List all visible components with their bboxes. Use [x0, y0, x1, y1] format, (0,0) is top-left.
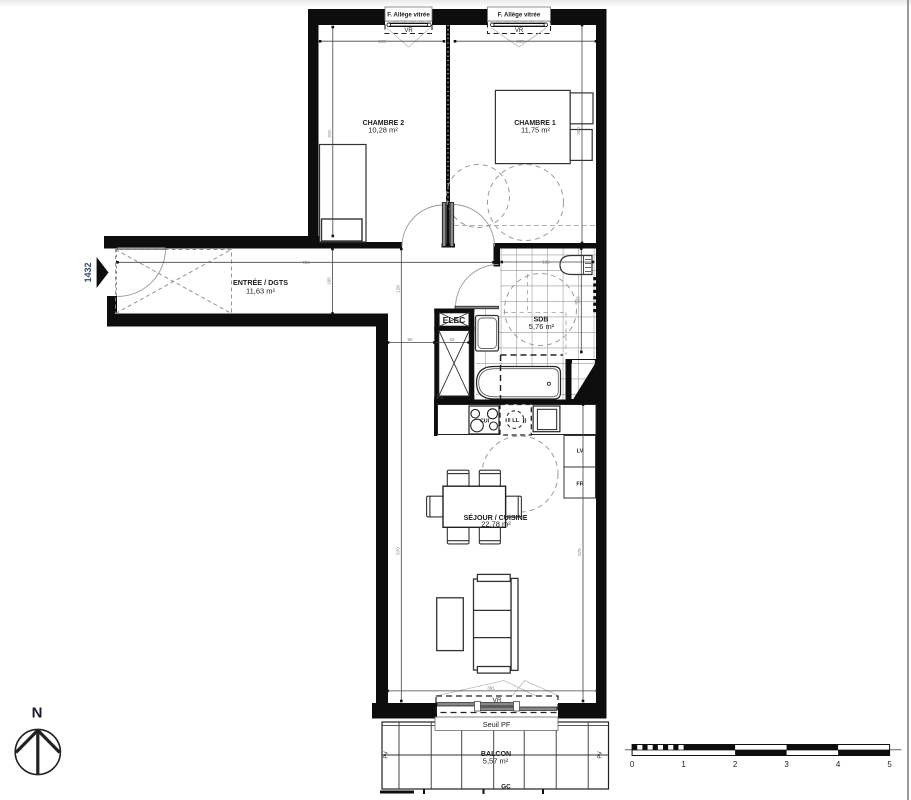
- svg-text:265: 265: [516, 39, 524, 44]
- svg-text:155: 155: [575, 296, 580, 304]
- svg-text:PV: PV: [384, 751, 390, 759]
- svg-text:2: 2: [733, 760, 738, 769]
- svg-text:1432: 1432: [83, 262, 93, 282]
- svg-text:570: 570: [395, 547, 400, 555]
- svg-text:1: 1: [681, 760, 686, 769]
- svg-text:F. Allège vitrée: F. Allège vitrée: [498, 12, 541, 19]
- svg-text:F. Allège vitrée: F. Allège vitrée: [387, 12, 430, 19]
- svg-text:22,78 m²: 22,78 m²: [481, 520, 511, 529]
- svg-text:CUI: CUI: [480, 418, 490, 424]
- svg-text:)): )): [523, 418, 527, 424]
- svg-text:345: 345: [378, 39, 386, 44]
- svg-text:5: 5: [887, 760, 892, 769]
- svg-text:138: 138: [542, 260, 550, 265]
- svg-text:FR: FR: [576, 482, 583, 488]
- svg-text:300: 300: [576, 127, 581, 135]
- svg-text:10,28 m²: 10,28 m²: [368, 126, 398, 135]
- svg-text:LV: LV: [577, 449, 584, 455]
- svg-text:VR: VR: [404, 28, 413, 34]
- svg-text:5,76 m²: 5,76 m²: [529, 322, 555, 331]
- svg-text:5,57 m²: 5,57 m²: [483, 757, 509, 766]
- svg-text:105: 105: [327, 277, 332, 285]
- svg-text:PV: PV: [598, 751, 604, 759]
- svg-text:128: 128: [395, 285, 400, 293]
- svg-text:728: 728: [302, 260, 310, 265]
- svg-text:575: 575: [577, 548, 582, 556]
- svg-text:GC: GC: [501, 784, 511, 791]
- svg-text:391: 391: [487, 685, 495, 690]
- svg-text:ǁ LL: ǁ LL: [508, 418, 520, 424]
- svg-text:PL: PL: [436, 395, 444, 401]
- svg-text:N: N: [32, 705, 43, 722]
- svg-text:11,75 m²: 11,75 m²: [521, 126, 551, 135]
- svg-text:90: 90: [407, 337, 413, 342]
- svg-text:11,63 m²: 11,63 m²: [246, 287, 276, 296]
- svg-text:4: 4: [836, 760, 841, 769]
- svg-text:Seuil PF: Seuil PF: [483, 720, 511, 729]
- svg-text:3: 3: [784, 760, 789, 769]
- svg-text:83: 83: [449, 337, 455, 342]
- svg-text:VR: VR: [515, 28, 524, 34]
- svg-text:0: 0: [630, 760, 635, 769]
- svg-text:310: 310: [327, 130, 332, 138]
- svg-text:ELEC: ELEC: [443, 315, 466, 325]
